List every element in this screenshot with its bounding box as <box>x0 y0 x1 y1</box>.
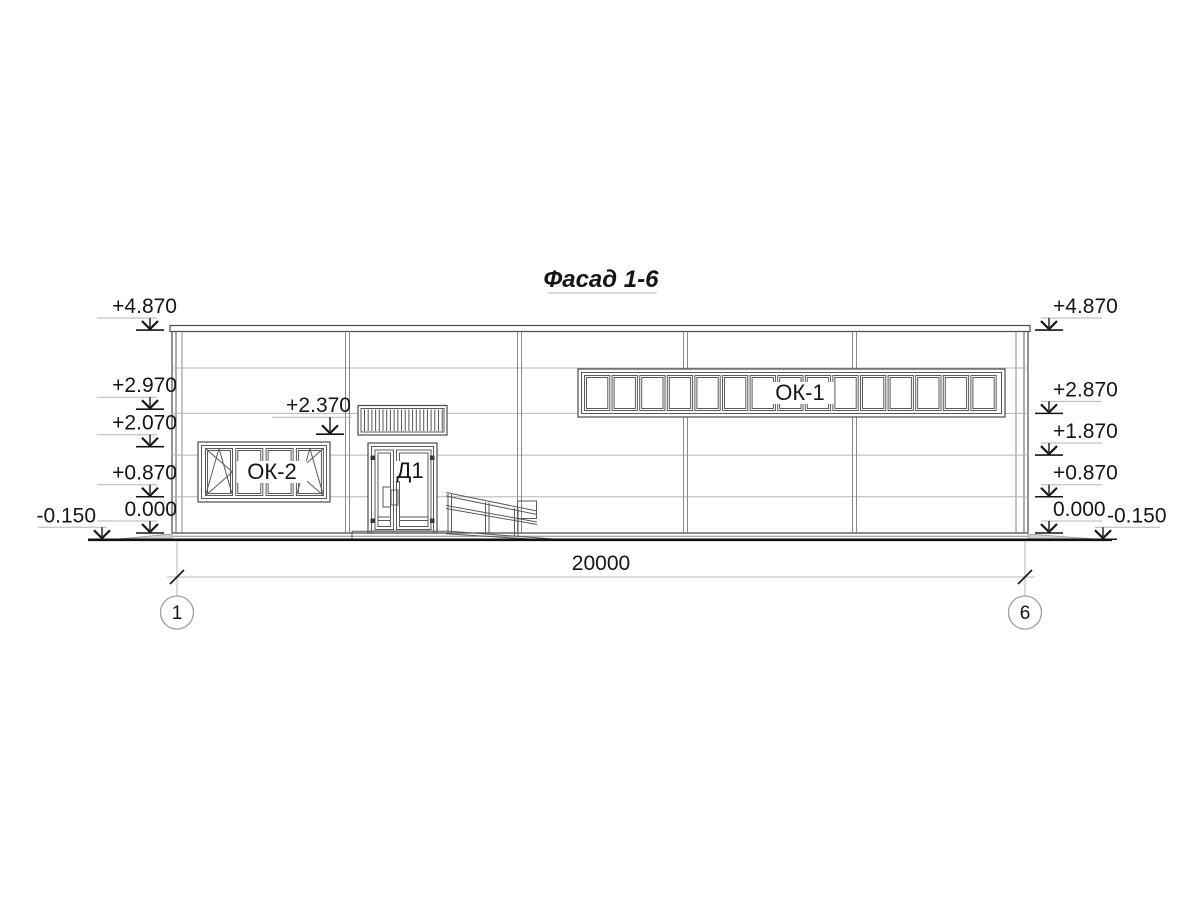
axis-number-6: 6 <box>1020 603 1031 624</box>
elevation-mark: 0.000 <box>97 498 177 533</box>
window-pane <box>206 449 233 496</box>
elevation-value: +2.370 <box>286 394 351 417</box>
window-pane <box>612 376 637 411</box>
dimension-value: 20000 <box>572 552 630 575</box>
window-label: ОК-2 <box>247 459 297 484</box>
elevation-value: +2.070 <box>112 412 177 435</box>
window-pane <box>943 376 968 411</box>
elevation-mark: +1.870 <box>1035 420 1118 455</box>
canopy-frame-outer <box>358 406 447 436</box>
elevation-mark: +4.870 <box>97 295 177 330</box>
canopy-hatch <box>365 410 443 432</box>
window-band-label: ОК-1 <box>775 380 825 405</box>
elevation-mark: 0.000 <box>1035 498 1106 533</box>
door-hinge <box>430 519 435 524</box>
blind-area-right <box>1028 534 1096 539</box>
window-pane <box>667 376 692 411</box>
elevation-value: +4.870 <box>1053 295 1118 318</box>
building-outline <box>170 326 1030 537</box>
blind-area-left <box>118 534 172 539</box>
window-pane <box>833 376 858 411</box>
window-ok2: ОК-2 <box>198 442 330 502</box>
elevation-value: +2.870 <box>1053 378 1118 401</box>
window-pane <box>640 376 665 411</box>
door-d1: Д1 <box>368 443 437 533</box>
door-label: Д1 <box>396 458 423 483</box>
parapet-coping <box>170 326 1030 332</box>
door-hinge <box>430 456 435 461</box>
sash-opening-symbol <box>206 449 233 496</box>
window-band-ok1: ОК-1 <box>578 369 1005 417</box>
elevation-mark: +0.870 <box>1035 462 1118 497</box>
door-handle <box>383 487 391 507</box>
dimension-20000: 20000 <box>167 541 1035 596</box>
axis-number-1: 1 <box>172 603 183 624</box>
window-pane <box>695 376 720 411</box>
ramp-rails <box>446 493 537 525</box>
window-pane <box>971 376 996 411</box>
elevation-value: +0.870 <box>112 462 177 485</box>
axis-bubbles: 1 6 <box>161 596 1042 629</box>
door-hinge <box>371 519 376 524</box>
elevation-mark: -0.150 <box>36 504 116 539</box>
ground <box>88 534 1112 540</box>
window-pane <box>888 376 913 411</box>
drawing-sheet: Фасад 1-6 ОК-1 ОК-2 <box>0 0 1200 900</box>
elevation-mark: +4.870 <box>1035 295 1118 330</box>
window-pane <box>916 376 941 411</box>
elevation-value: +4.870 <box>112 295 177 318</box>
facade-drawing: Фасад 1-6 ОК-1 ОК-2 <box>0 0 1200 900</box>
window-pane <box>723 376 748 411</box>
elevation-mark: +2.370 <box>272 394 352 434</box>
elevation-value: -0.150 <box>36 504 96 527</box>
elevation-mark: +0.870 <box>97 462 177 497</box>
elevation-value: 0.000 <box>124 498 177 521</box>
elevation-value: +2.970 <box>112 374 177 397</box>
door-leaf-left-panel <box>378 453 391 527</box>
elevation-mark: +2.070 <box>97 412 177 447</box>
door-hinge <box>371 456 376 461</box>
ramp-rail-end <box>518 501 537 519</box>
title-text: Фасад 1-6 <box>544 266 660 293</box>
elevation-value: +1.870 <box>1053 420 1118 443</box>
elevation-value: -0.150 <box>1107 504 1167 527</box>
door-canopy <box>358 406 447 436</box>
elevation-value: +0.870 <box>1053 462 1118 485</box>
elevation-mark: +2.970 <box>97 374 177 409</box>
window-pane <box>861 376 886 411</box>
elevation-mark: +2.870 <box>1035 378 1118 413</box>
drawing-title: Фасад 1-6 <box>544 266 660 293</box>
elevation-value: 0.000 <box>1053 498 1106 521</box>
window-pane <box>585 376 610 411</box>
